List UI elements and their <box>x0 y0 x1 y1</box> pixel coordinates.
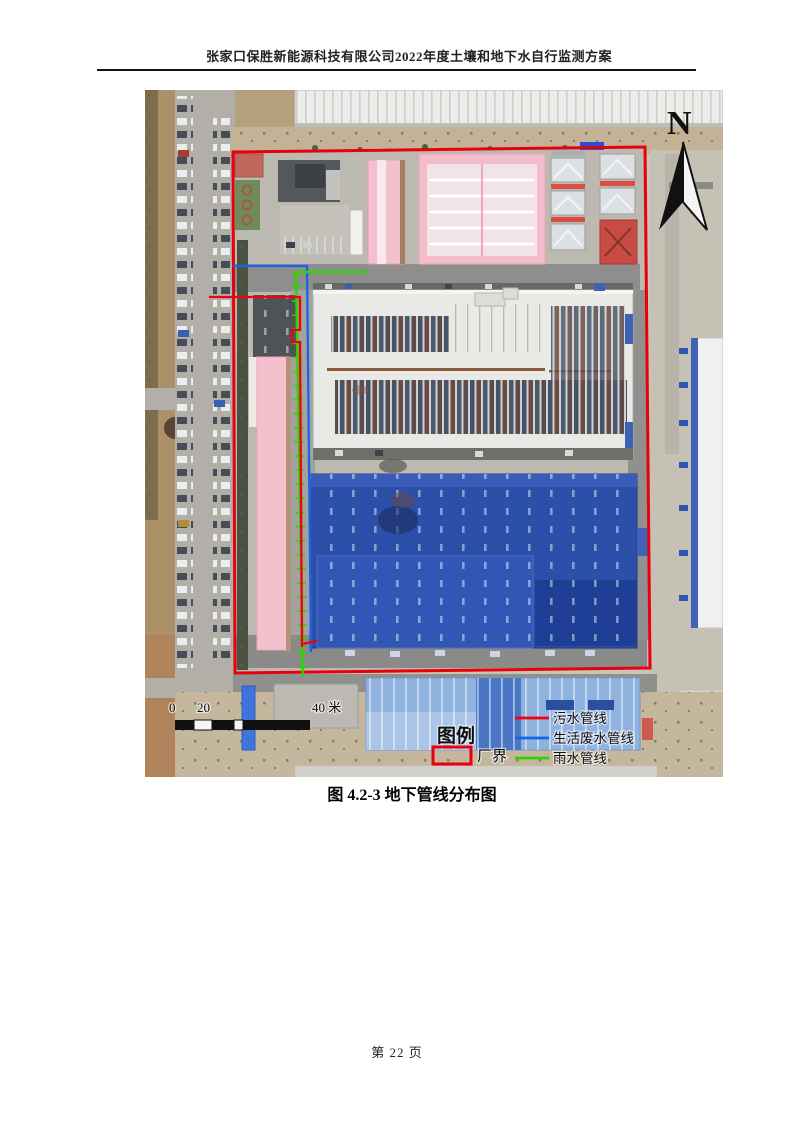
north-label: N <box>667 105 692 142</box>
legend-label-rainwater: 雨水管线 <box>553 751 607 766</box>
report-page: 张家口保胜新能源科技有限公司2022年度土壤和地下水自行监测方案 <box>0 0 794 1123</box>
satellite-map: 0 20 40 米 图例 厂界 污水管线 生活废水管线 雨水管线 <box>145 90 723 777</box>
scale-label-0: 0 <box>169 700 176 715</box>
page-number: 第 22 页 <box>0 1042 794 1061</box>
scale-label-40m: 40 米 <box>312 700 341 715</box>
page-header: 张家口保胜新能源科技有限公司2022年度土壤和地下水自行监测方案 <box>12 46 794 65</box>
legend-boundary-label: 厂界 <box>477 749 507 765</box>
legend-label-wastewater: 生活废水管线 <box>553 731 634 746</box>
legend-label-sewage: 污水管线 <box>553 711 607 726</box>
figure-satellite-map: 0 20 40 米 图例 厂界 污水管线 生活废水管线 雨水管线 <box>145 90 723 777</box>
east-neighbor-area <box>650 150 723 777</box>
scale-bar-segments <box>175 720 310 730</box>
figure-caption: 图 4.2-3 地下管线分布图 <box>15 781 794 805</box>
main-production-building <box>313 283 633 473</box>
blue-warehouse <box>310 474 648 657</box>
legend-title: 图例 <box>437 724 475 747</box>
header-rule <box>97 69 696 71</box>
scale-label-20: 20 <box>197 700 210 715</box>
north-neighbor-building <box>231 90 723 154</box>
